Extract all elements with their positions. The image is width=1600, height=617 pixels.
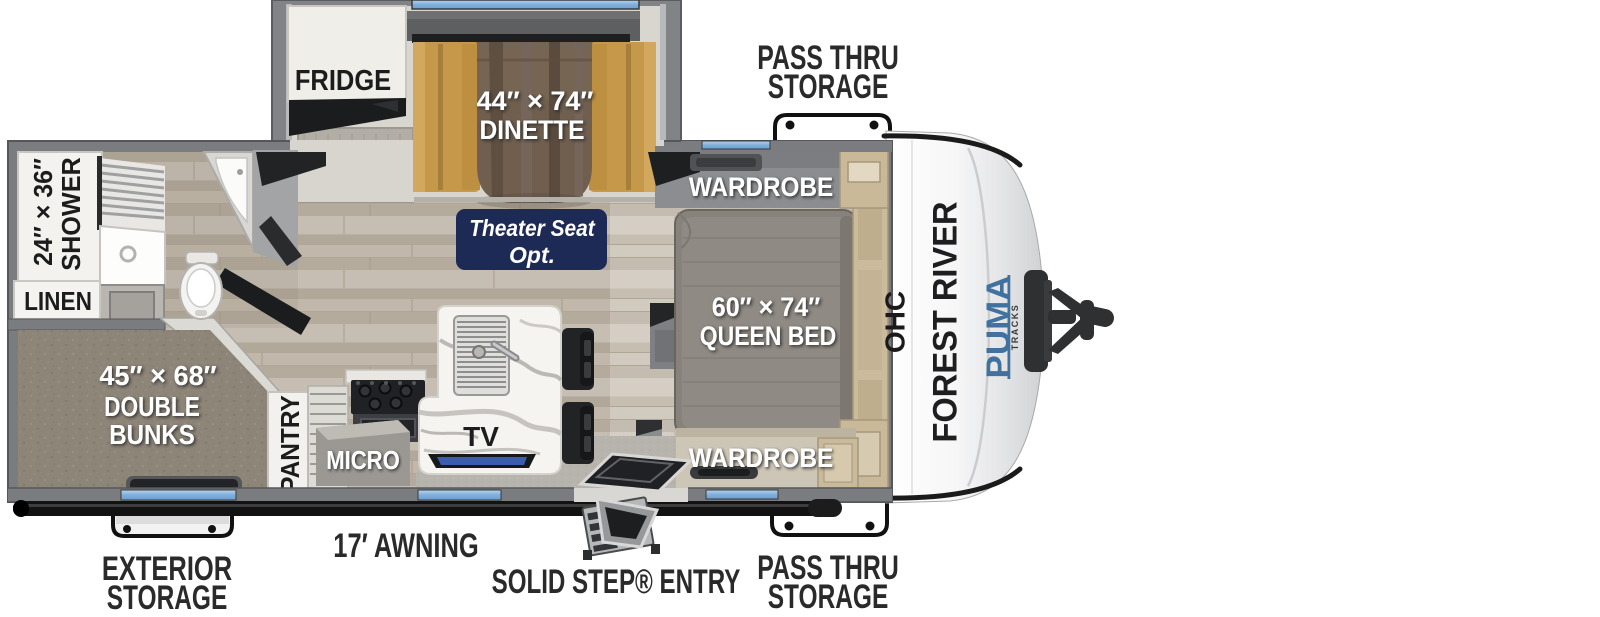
svg-text:LINEN: LINEN — [24, 288, 92, 317]
svg-text:DINETTE: DINETTE — [479, 116, 584, 145]
svg-text:FOREST RIVER: FOREST RIVER — [927, 201, 965, 442]
svg-text:60″ × 74″: 60″ × 74″ — [712, 291, 821, 322]
svg-text:24″ × 36″: 24″ × 36″ — [30, 158, 59, 266]
svg-text:MICRO: MICRO — [326, 446, 400, 475]
svg-text:FRIDGE: FRIDGE — [295, 63, 391, 96]
svg-text:Opt.: Opt. — [509, 242, 555, 268]
svg-text:BUNKS: BUNKS — [109, 418, 195, 450]
svg-text:TRACKS: TRACKS — [1010, 304, 1020, 351]
svg-text:STORAGE: STORAGE — [107, 579, 228, 617]
svg-text:QUEEN BED: QUEEN BED — [700, 321, 836, 351]
svg-text:PANTRY: PANTRY — [277, 395, 306, 493]
svg-text:OHC: OHC — [880, 291, 911, 353]
svg-text:WARDROBE: WARDROBE — [689, 173, 833, 202]
svg-text:STORAGE: STORAGE — [768, 578, 889, 616]
svg-text:17′ AWNING: 17′ AWNING — [333, 528, 478, 565]
svg-text:WARDROBE: WARDROBE — [689, 444, 833, 473]
svg-text:SHOWER: SHOWER — [58, 157, 86, 270]
svg-text:44″ × 74″: 44″ × 74″ — [477, 86, 594, 116]
svg-text:SOLID STEP® ENTRY: SOLID STEP® ENTRY — [492, 563, 741, 601]
svg-text:TV: TV — [463, 421, 499, 452]
svg-text:Theater Seat: Theater Seat — [469, 215, 596, 241]
svg-text:STORAGE: STORAGE — [768, 68, 889, 106]
svg-text:45″ × 68″: 45″ × 68″ — [99, 360, 216, 391]
